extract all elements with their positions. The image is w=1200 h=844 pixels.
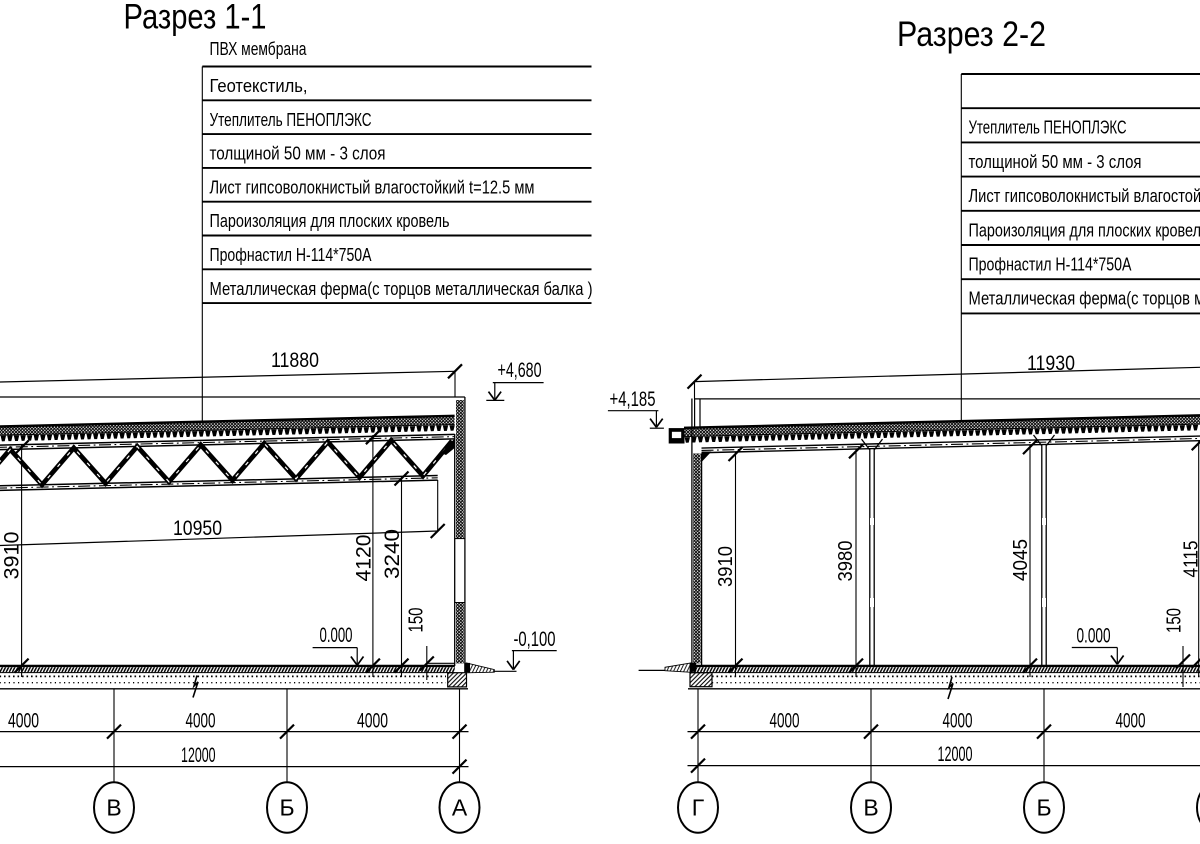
svg-text:В: В	[863, 795, 878, 821]
svg-text:4000: 4000	[357, 710, 388, 733]
svg-text:Лист гипсоволокнистый влагосто: Лист гипсоволокнистый влагостойкий t=12.…	[210, 177, 535, 197]
svg-text:12000: 12000	[181, 744, 216, 767]
svg-text:11930: 11930	[1027, 352, 1075, 375]
svg-text:толщиной 50 мм - 3 слоя: толщиной 50 мм - 3 слоя	[969, 152, 1142, 172]
svg-text:3910: 3910	[1, 532, 24, 580]
svg-text:4000: 4000	[943, 710, 973, 733]
svg-text:Лист гипсоволокнистый влагосто: Лист гипсоволокнистый влагостойкий t=12.…	[969, 186, 1200, 206]
svg-text:Б: Б	[1036, 795, 1051, 821]
svg-text:А: А	[452, 795, 468, 821]
svg-text:Пароизоляция для плоских крове: Пароизоляция для плоских кровель	[969, 220, 1200, 240]
svg-text:Утеплитель ПЕНОПЛЭКС: Утеплитель ПЕНОПЛЭКС	[210, 110, 372, 130]
svg-text:3980: 3980	[835, 541, 857, 582]
svg-text:4120: 4120	[353, 535, 376, 582]
svg-text:0.000: 0.000	[1077, 625, 1111, 648]
svg-text:Разрез 1-1: Разрез 1-1	[124, 0, 267, 37]
svg-text:12000: 12000	[938, 743, 973, 766]
svg-text:Утеплитель ПЕНОПЛЭКС: Утеплитель ПЕНОПЛЭКС	[969, 118, 1127, 138]
svg-text:11880: 11880	[271, 349, 319, 372]
svg-text:4045: 4045	[1010, 539, 1032, 581]
svg-text:Профнастил Н-114*750А: Профнастил Н-114*750А	[969, 255, 1132, 275]
svg-text:толщиной 50 мм - 3 слоя: толщиной 50 мм - 3 слоя	[210, 144, 386, 164]
svg-text:Б: Б	[279, 795, 294, 821]
svg-text:4115: 4115	[1181, 541, 1200, 578]
svg-text:4000: 4000	[8, 710, 39, 733]
svg-text:Геотекстиль,: Геотекстиль,	[210, 76, 308, 96]
svg-text:Металлическая ферма(с торцов м: Металлическая ферма(с торцов металлическ…	[210, 279, 593, 299]
svg-text:3240: 3240	[381, 529, 404, 579]
svg-text:Профнастил Н-114*750А: Профнастил Н-114*750А	[210, 245, 372, 265]
svg-text:0.000: 0.000	[320, 624, 353, 647]
svg-text:+4,680: +4,680	[498, 359, 542, 382]
svg-text:Пароизоляция для плоских крове: Пароизоляция для плоских кровель	[210, 211, 450, 231]
svg-text:3910: 3910	[715, 546, 737, 587]
svg-text:4000: 4000	[1116, 710, 1146, 733]
svg-text:150: 150	[1164, 608, 1186, 633]
svg-text:+4,185: +4,185	[610, 388, 656, 411]
svg-text:Металлическая ферма(с торцов м: Металлическая ферма(с торцов металлическ…	[969, 289, 1200, 309]
svg-text:4000: 4000	[186, 710, 216, 733]
svg-text:150: 150	[406, 608, 428, 633]
svg-text:В: В	[106, 795, 121, 821]
svg-text:10950: 10950	[173, 517, 222, 540]
svg-text:Г: Г	[692, 795, 705, 821]
svg-text:-0,100: -0,100	[514, 628, 556, 651]
svg-text:4000: 4000	[770, 710, 800, 733]
svg-text:Разрез 2-2: Разрез 2-2	[897, 15, 1046, 54]
svg-text:ПВХ мембрана: ПВХ мембрана	[210, 39, 308, 59]
